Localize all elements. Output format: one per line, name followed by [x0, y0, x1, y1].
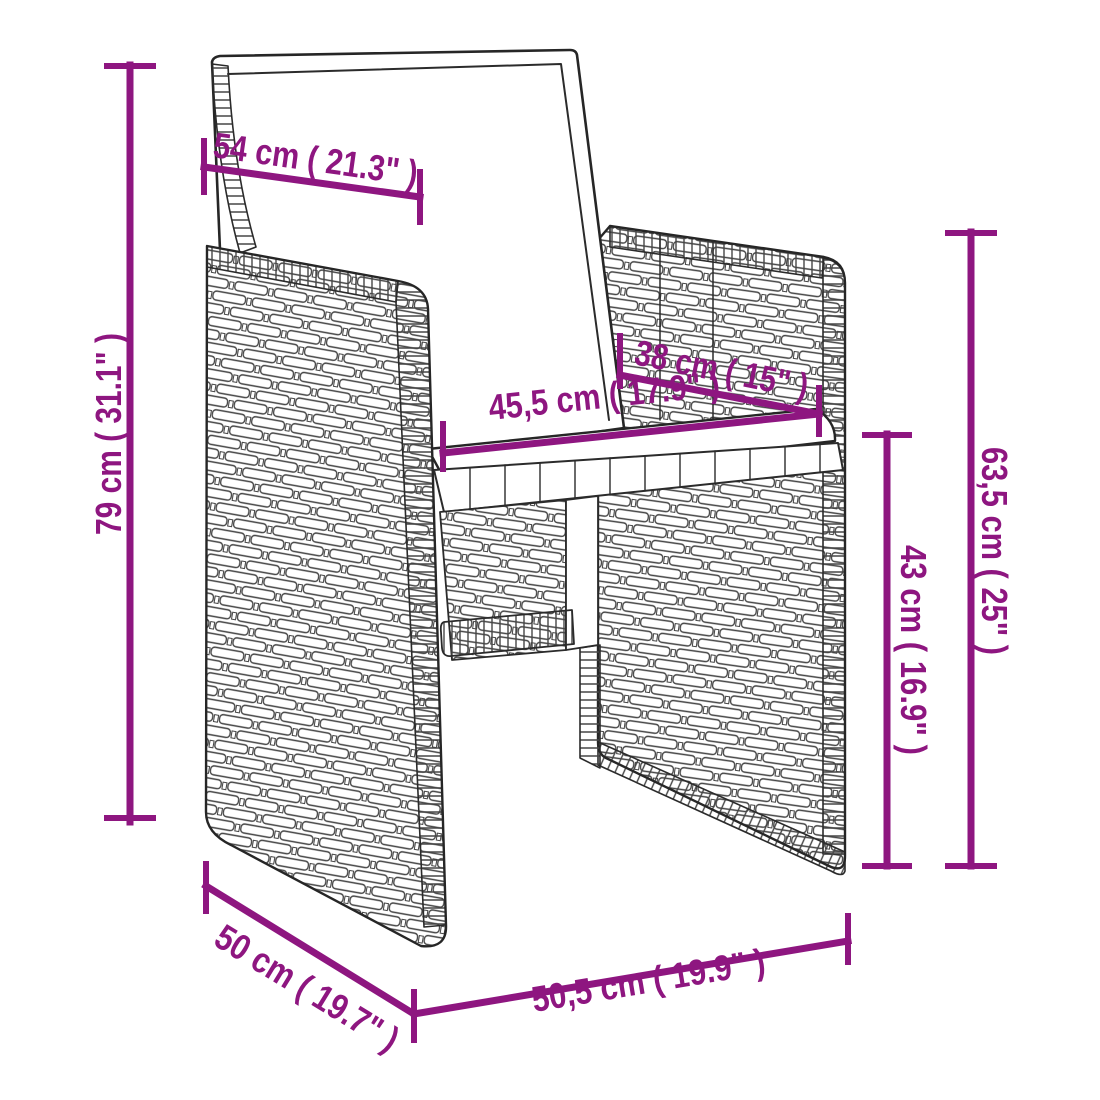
under-seat-structure: [440, 496, 600, 768]
dim-79-label: 79 cm ( 31.1" ): [88, 333, 129, 535]
chair-back-right-panel: [598, 226, 845, 875]
inner-leg-stack: [580, 645, 600, 768]
dim-50-5-label: 50,5 cm ( 19.9" ): [529, 941, 769, 1020]
panel-corner-stack: [823, 258, 845, 854]
dim-63-5-label: 63,5 cm ( 25" ): [974, 447, 1015, 655]
dim-43-label: 43 cm ( 16.9" ): [893, 545, 934, 755]
chair-dimension-diagram: 54 cm ( 21.3" ) 79 cm ( 31.1" ) 38 cm ( …: [0, 0, 1100, 1100]
chair-left-panel: [206, 246, 446, 946]
diagram-canvas: 54 cm ( 21.3" ) 79 cm ( 31.1" ) 38 cm ( …: [0, 0, 1100, 1100]
chair-line-art: [206, 50, 845, 946]
